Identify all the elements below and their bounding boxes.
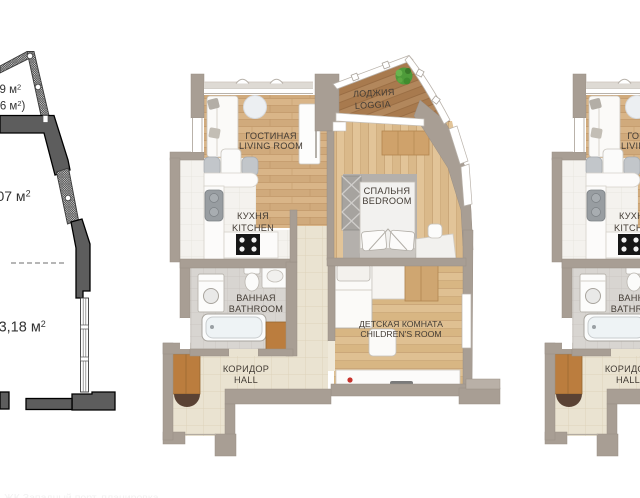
svg-text:КОРИДОР: КОРИДОР xyxy=(223,364,269,374)
svg-text:LOGGIA: LOGGIA xyxy=(355,99,391,111)
svg-text:ГОСТИНАЯ: ГОСТИНАЯ xyxy=(245,131,297,141)
svg-text:BATHROOM: BATHROOM xyxy=(229,304,283,314)
svg-text:CHILDREN'S ROOM: CHILDREN'S ROOM xyxy=(360,329,441,339)
svg-text:KITCHEN: KITCHEN xyxy=(232,223,274,233)
svg-text:КУХНЯ: КУХНЯ xyxy=(237,211,269,221)
svg-text:BEDROOM: BEDROOM xyxy=(362,196,411,206)
svg-text:ДЕТСКАЯ КОМНАТА: ДЕТСКАЯ КОМНАТА xyxy=(359,319,443,329)
svg-text:ЖК Западный порт, планировка: ЖК Западный порт, планировка xyxy=(4,492,159,498)
svg-text:HALL: HALL xyxy=(234,375,258,385)
svg-text:(5,56 м2): (5,56 м2) xyxy=(0,99,26,113)
svg-text:LIVING ROOM: LIVING ROOM xyxy=(239,141,303,151)
svg-text:СПАЛЬНЯ: СПАЛЬНЯ xyxy=(364,186,411,196)
svg-text:13,18 м2: 13,18 м2 xyxy=(0,319,46,336)
svg-text:ВАННАЯ: ВАННАЯ xyxy=(236,293,275,303)
